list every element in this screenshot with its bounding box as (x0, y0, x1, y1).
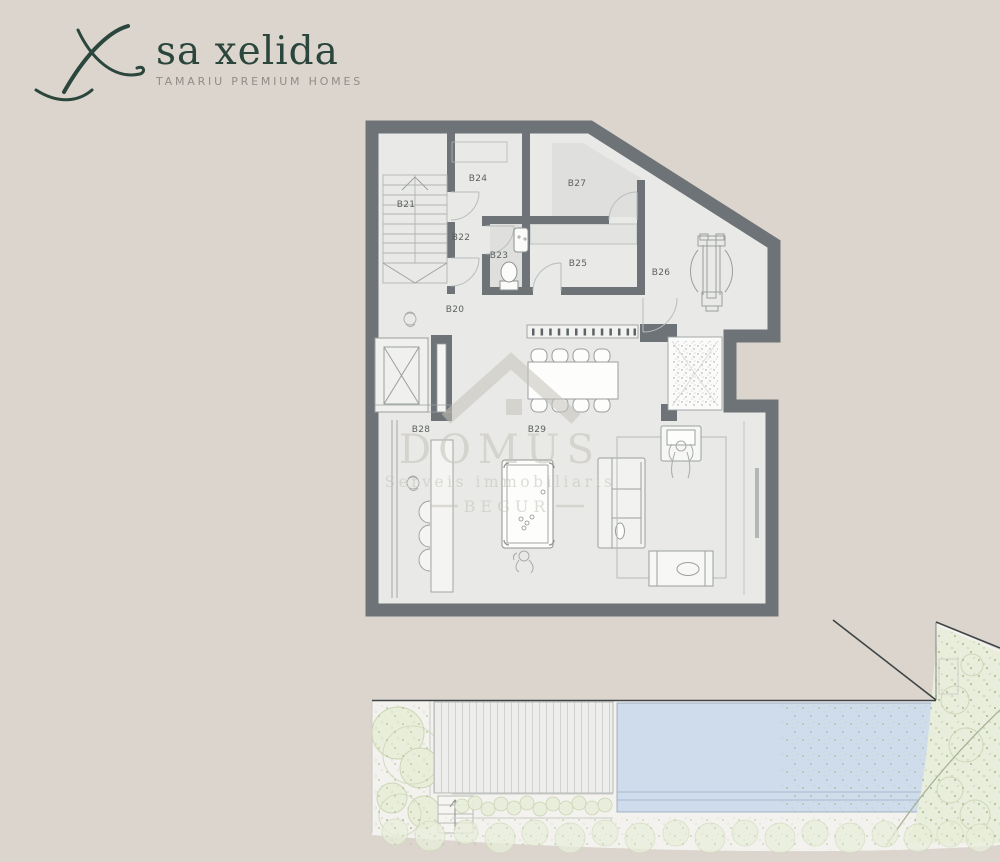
dining-chair (594, 349, 610, 363)
watermark-subtitle: Serveis immobiliaris (384, 473, 615, 491)
sideboard (649, 551, 713, 586)
dining-chair (531, 349, 547, 363)
sofa (598, 458, 645, 548)
room-label-b23: B23 (490, 251, 509, 261)
swimming-pool (617, 703, 932, 812)
window (755, 468, 759, 538)
room-label-b21: B21 (397, 200, 416, 210)
room-label-b26: B26 (652, 268, 671, 278)
watermark-name: DOMUS (399, 427, 601, 473)
room-label-b22: B22 (452, 233, 471, 243)
watermark-location: BEGUR (464, 497, 551, 516)
floor-plan-svg: B20 B21 B22 B23 B24 B25 B26 B27 B28 B29 … (0, 0, 1000, 862)
wood-deck (434, 702, 613, 793)
watermark-house-window (506, 399, 522, 415)
room-b25-wardrobe (530, 224, 637, 244)
room-label-b27: B27 (568, 179, 587, 189)
room-label-b25: B25 (569, 259, 588, 269)
courtyard (668, 337, 722, 410)
building: B20 B21 B22 B23 B24 B25 B26 B27 B28 B29 (372, 127, 774, 610)
room-label-b24: B24 (469, 174, 488, 184)
dining-chair (552, 349, 568, 363)
garden-area (372, 620, 1000, 853)
dining-chair (531, 398, 547, 412)
garden-vegetation-bottom (380, 816, 995, 853)
room-label-b20: B20 (446, 305, 465, 315)
dining-chair (573, 349, 589, 363)
toilet-bowl (501, 262, 517, 282)
bathroom-sink (514, 228, 528, 252)
dining-chair (594, 398, 610, 412)
plot-boundary-lines (372, 620, 1000, 701)
slatted-partition (527, 325, 638, 338)
